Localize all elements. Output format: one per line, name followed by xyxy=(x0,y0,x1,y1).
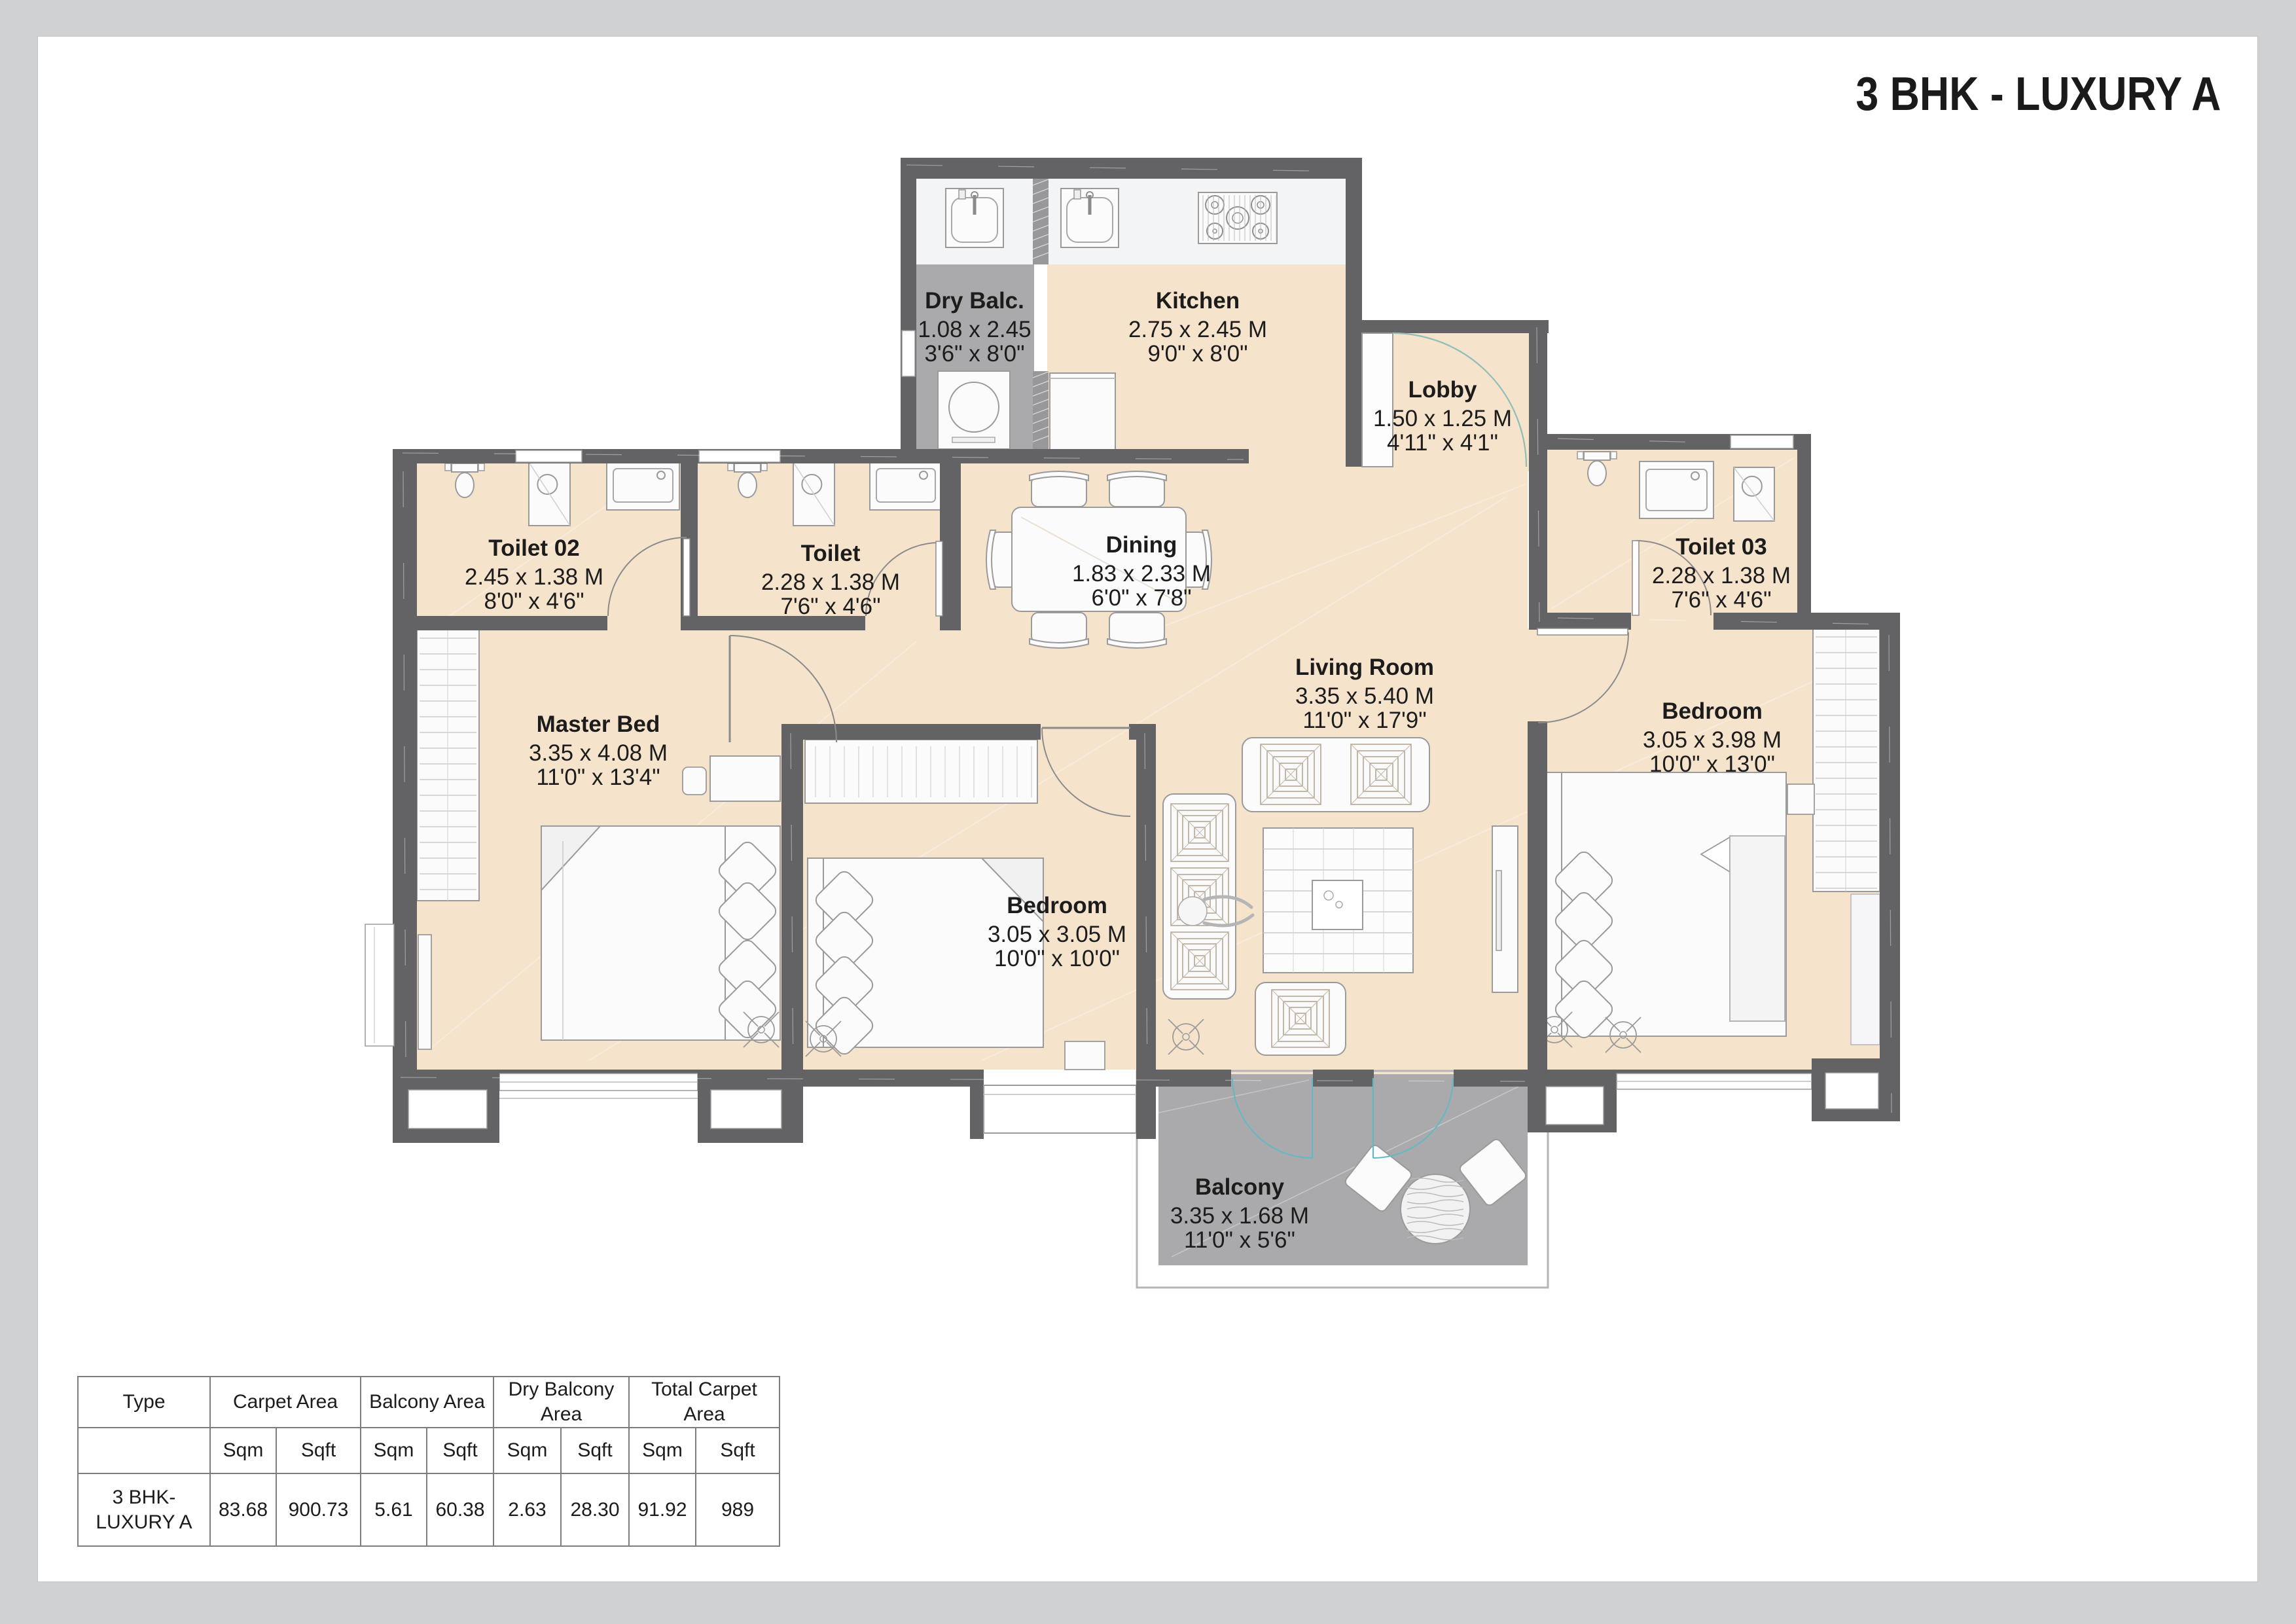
svg-text:Dining: Dining xyxy=(1106,532,1177,558)
svg-text:1.50 x 1.25 M: 1.50 x 1.25 M xyxy=(1373,406,1512,431)
svg-text:Master Bed: Master Bed xyxy=(537,712,660,737)
svg-text:Living Room: Living Room xyxy=(1295,655,1434,680)
svg-text:10'0" x 13'0": 10'0" x 13'0" xyxy=(1649,751,1775,777)
svg-text:Dry Balc.: Dry Balc. xyxy=(925,288,1024,314)
svg-text:3.05 x 3.05 M: 3.05 x 3.05 M xyxy=(988,922,1126,947)
svg-text:11'0" x 5'6": 11'0" x 5'6" xyxy=(1184,1227,1295,1253)
svg-text:6'0" x 7'8": 6'0" x 7'8" xyxy=(1091,585,1191,611)
svg-text:11'0" x 17'9": 11'0" x 17'9" xyxy=(1302,708,1426,733)
svg-text:3.05 x 3.98 M: 3.05 x 3.98 M xyxy=(1643,727,1782,753)
svg-text:Kitchen: Kitchen xyxy=(1156,288,1240,314)
svg-text:3.35 x 5.40 M: 3.35 x 5.40 M xyxy=(1295,683,1434,709)
svg-text:9'0" x 8'0": 9'0" x 8'0" xyxy=(1147,341,1247,367)
svg-text:2.28 x 1.38 M: 2.28 x 1.38 M xyxy=(1652,563,1791,588)
svg-text:Toilet 02: Toilet 02 xyxy=(488,535,579,561)
svg-text:Balcony: Balcony xyxy=(1195,1174,1285,1200)
svg-text:1.08 x 2.45: 1.08 x 2.45 xyxy=(918,317,1031,342)
svg-text:7'6" x 4'6": 7'6" x 4'6" xyxy=(780,594,880,619)
svg-text:Toilet 03: Toilet 03 xyxy=(1676,534,1767,560)
svg-text:10'0" x 10'0": 10'0" x 10'0" xyxy=(994,946,1120,971)
svg-text:2.45 x 1.38 M: 2.45 x 1.38 M xyxy=(465,564,603,590)
svg-text:3.35 x 1.68 M: 3.35 x 1.68 M xyxy=(1170,1203,1309,1229)
svg-text:Bedroom: Bedroom xyxy=(1007,893,1107,918)
svg-text:2.75 x 2.45 M: 2.75 x 2.45 M xyxy=(1128,317,1267,342)
svg-text:1.83 x 2.33 M: 1.83 x 2.33 M xyxy=(1072,561,1211,586)
svg-text:Toilet: Toilet xyxy=(801,541,861,566)
svg-text:3.35 x 4.08 M: 3.35 x 4.08 M xyxy=(529,740,668,766)
svg-text:2.28 x 1.38 M: 2.28 x 1.38 M xyxy=(761,569,900,595)
svg-text:Lobby: Lobby xyxy=(1408,377,1478,403)
svg-text:7'6" x 4'6": 7'6" x 4'6" xyxy=(1671,587,1771,613)
svg-text:3'6" x 8'0": 3'6" x 8'0" xyxy=(924,341,1024,367)
svg-text:8'0" x 4'6": 8'0" x 4'6" xyxy=(484,588,584,614)
svg-text:11'0" x 13'4": 11'0" x 13'4" xyxy=(536,765,660,790)
svg-text:4'11" x 4'1": 4'11" x 4'1" xyxy=(1387,430,1498,456)
svg-text:Bedroom: Bedroom xyxy=(1662,698,1763,724)
